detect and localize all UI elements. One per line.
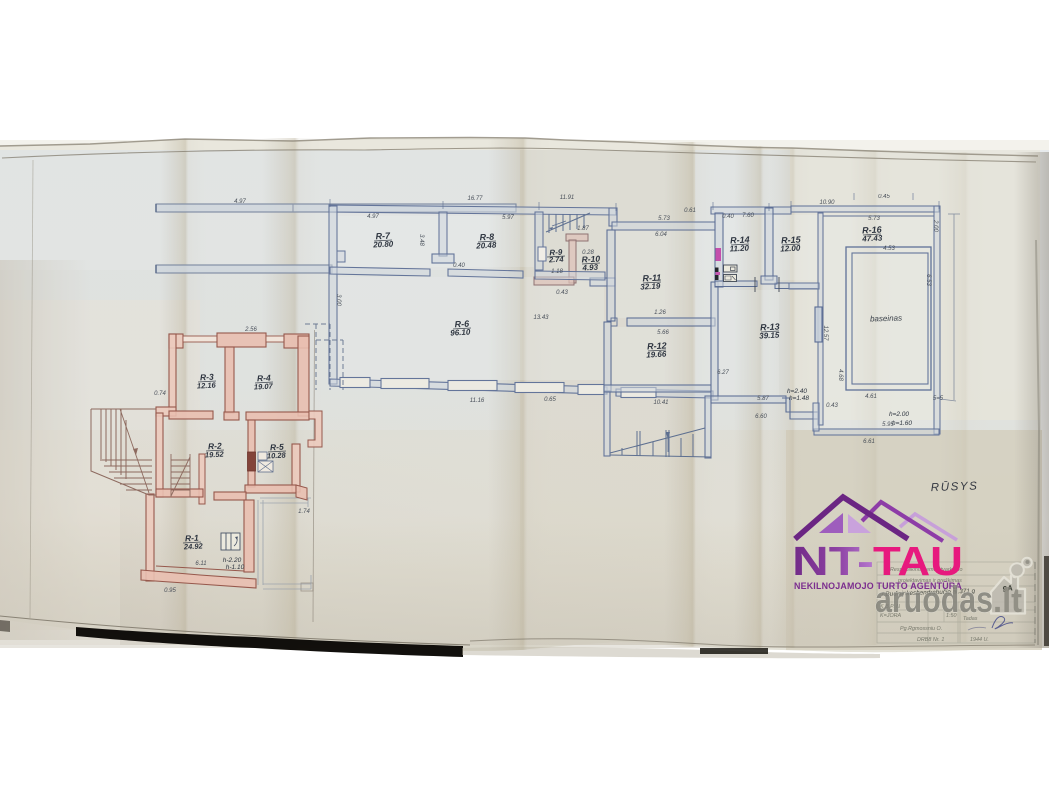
svg-text:h=1.48: h=1.48 [789,395,809,402]
svg-text:5.73: 5.73 [658,216,670,222]
svg-text:RŪSYS: RŪSYS [931,480,979,494]
svg-text:10.90: 10.90 [819,200,835,206]
svg-text:5.95: 5.95 [882,422,894,428]
svg-text:h=2.40: h=2.40 [787,388,807,395]
svg-text:.lt: .lt [993,582,1022,620]
svg-text:13.43: 13.43 [533,315,549,321]
svg-text:5.73: 5.73 [868,216,880,222]
svg-text:12.57: 12.57 [822,325,828,341]
svg-text:16.77: 16.77 [467,196,483,202]
svg-text:4.97: 4.97 [367,214,379,220]
svg-text:11.16: 11.16 [470,398,485,404]
svg-text:2.56: 2.56 [244,327,257,333]
svg-text:6.53: 6.53 [925,274,931,286]
svg-text:4.53: 4.53 [883,246,895,252]
svg-text:1944 U.: 1944 U. [970,637,989,643]
svg-text:6.60: 6.60 [755,414,767,420]
svg-text:baseinas: baseinas [870,313,902,323]
svg-text:5.66: 5.66 [657,330,669,336]
svg-text:0.40: 0.40 [722,214,734,220]
svg-text:6.27: 6.27 [717,370,729,376]
svg-text:11.91: 11.91 [560,195,575,201]
svg-text:0.40: 0.40 [453,263,465,269]
svg-text:0.45: 0.45 [878,194,890,200]
svg-text:4.68: 4.68 [837,369,843,381]
svg-text:0.61: 0.61 [684,208,696,214]
svg-text:1.87: 1.87 [577,226,589,232]
svg-text:5.97: 5.97 [502,215,514,221]
svg-text:Pg.Rgmossniu O.: Pg.Rgmossniu O. [900,626,942,632]
svg-text:4.61: 4.61 [865,394,877,400]
svg-text:10.41: 10.41 [653,400,668,406]
svg-text:5.87: 5.87 [757,396,769,402]
svg-text:0.28: 0.28 [582,250,594,256]
svg-text:1.26: 1.26 [654,310,666,316]
svg-text:0.43: 0.43 [556,290,568,296]
svg-text:h=2.00: h=2.00 [889,411,909,418]
svg-text:h-2.20: h-2.20 [223,557,242,564]
svg-text:TAU: TAU [873,538,963,584]
svg-text:0.95: 0.95 [164,588,176,594]
svg-text:6.04: 6.04 [655,232,667,238]
svg-text:aruodas: aruodas [875,579,993,620]
svg-text:1.18: 1.18 [551,269,563,275]
svg-text:0.43: 0.43 [826,403,838,409]
svg-text:0.65: 0.65 [544,397,556,403]
svg-text:3.00: 3.00 [335,294,341,306]
svg-text:0.74: 0.74 [154,391,166,397]
svg-text:NT-: NT- [792,538,874,584]
svg-text:7.60: 7.60 [742,213,754,219]
svg-text:4.97: 4.97 [234,199,246,205]
svg-text:1.74: 1.74 [298,509,310,515]
svg-text:6.11: 6.11 [195,561,206,567]
svg-text:6.61: 6.61 [863,439,875,445]
svg-text:3.48: 3.48 [418,234,424,246]
svg-text:2.00: 2.00 [932,219,938,232]
svg-text:DRB8 Nr. 1: DRB8 Nr. 1 [917,637,944,643]
svg-text:h=1.60: h=1.60 [892,420,912,427]
svg-text:h-1.10: h-1.10 [226,564,245,571]
